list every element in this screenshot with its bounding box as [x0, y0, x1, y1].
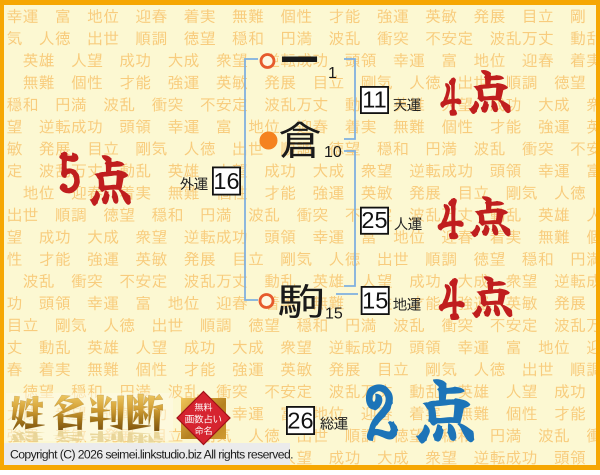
svg-text:25: 25 — [361, 207, 387, 233]
svg-text:26: 26 — [287, 408, 313, 434]
svg-text:Copyright (C) 2026 seimei.link: Copyright (C) 2026 seimei.linkstudio.biz… — [10, 448, 293, 462]
svg-text:15: 15 — [362, 288, 388, 314]
svg-text:16: 16 — [213, 168, 239, 194]
svg-text:15: 15 — [325, 306, 343, 323]
svg-text:11: 11 — [362, 87, 386, 113]
svg-text:10: 10 — [324, 144, 342, 161]
svg-text:1: 1 — [328, 65, 337, 82]
